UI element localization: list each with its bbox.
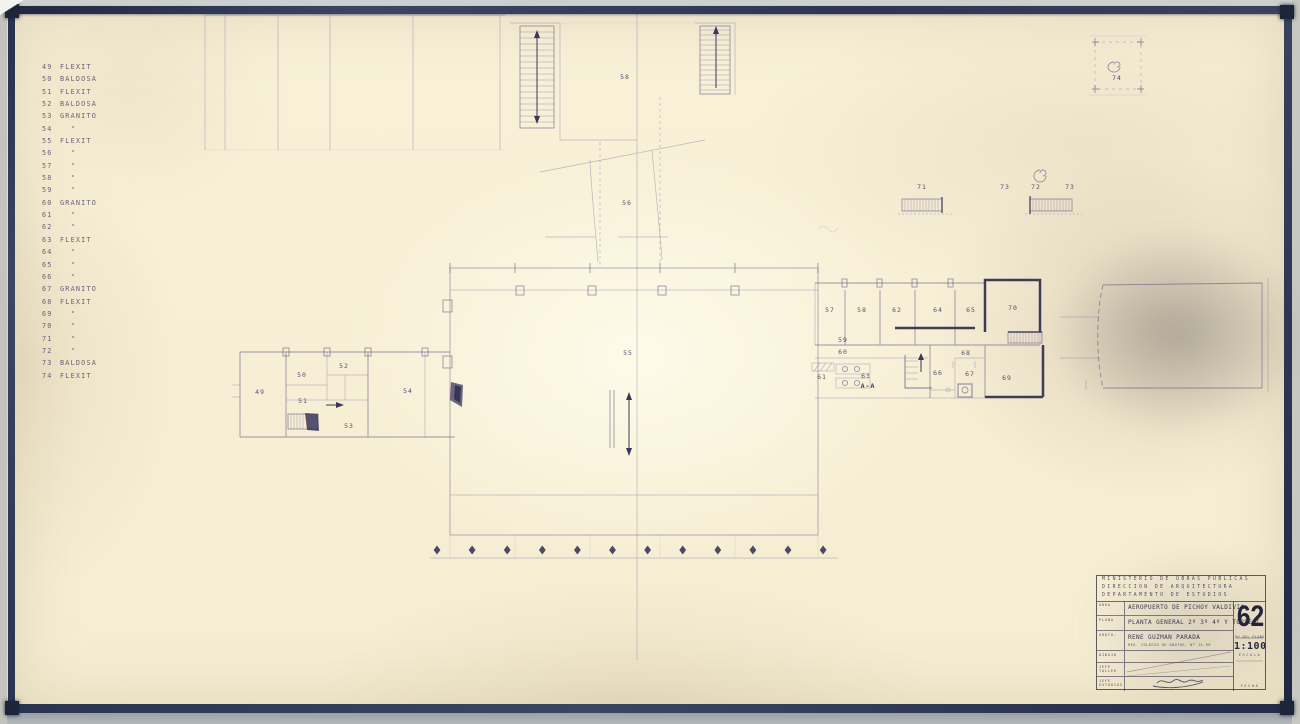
title-block-row-value: RENE GUZMAN PARADAREG. COLEGIO DE ARQTOS… — [1128, 631, 1233, 647]
title-block-row-label: JEFE TALLER — [1097, 663, 1125, 676]
sheet-border-frame-top — [6, 6, 1290, 14]
title-block-row: PLANOPLANTA GENERAL 2º 3º 4º Y TORRE C. — [1097, 616, 1233, 631]
legend-item: 61" — [42, 211, 97, 223]
agency-line: DEPARTAMENTO DE ESTUDIOS — [1097, 592, 1265, 600]
legend-item-number: 68 — [42, 298, 60, 306]
legend-item-material: " — [60, 211, 76, 219]
column-marker — [539, 546, 546, 555]
column-marker — [714, 546, 721, 555]
legend-item-material: " — [60, 261, 76, 269]
sheet-border-frame-left — [8, 7, 15, 711]
stair-top-left — [520, 26, 554, 128]
upper-floor-outline — [510, 23, 838, 265]
legend-item: 50BALDOSA — [42, 75, 97, 87]
column-marker — [469, 546, 476, 555]
legend-item: 69" — [42, 310, 97, 322]
legend-item-number: 52 — [42, 100, 60, 108]
plan-number-caption: Nº DEL PLANO — [1234, 635, 1266, 639]
column-marker — [644, 546, 651, 555]
legend-item: 54" — [42, 125, 97, 137]
legend-item: 59" — [42, 186, 97, 198]
title-block-row-value — [1128, 651, 1233, 654]
legend-item: 56" — [42, 149, 97, 161]
title-block-row-value: PLANTA GENERAL 2º 3º 4º Y TORRE C. — [1128, 616, 1233, 626]
legend-item: 72" — [42, 347, 97, 359]
title-block-row-label: ARQTO. — [1097, 631, 1125, 650]
legend-item-number: 56 — [42, 149, 60, 157]
legend-item-number: 58 — [42, 174, 60, 182]
legend-item-material: FLEXIT — [60, 298, 92, 306]
column-marker — [820, 546, 827, 555]
legend-item-number: 53 — [42, 112, 60, 120]
legend-item-number: 51 — [42, 88, 60, 96]
scale-caption: ESCALA — [1234, 653, 1266, 657]
legend-item-number: 73 — [42, 359, 60, 367]
title-block-row-subvalue: REG. COLEGIO DE ARQTOS. Nº 14-99 — [1128, 642, 1233, 647]
legend-item: 74FLEXIT — [42, 372, 97, 384]
title-block-row-value: AEROPUERTO DE PICHOY VALDIVIA — [1128, 601, 1233, 611]
legend-item-number: 63 — [42, 236, 60, 244]
left-wing — [232, 348, 455, 437]
legend-item-number: 50 — [42, 75, 60, 83]
date-caption: FECHA — [1234, 684, 1266, 688]
column-marker — [434, 546, 441, 555]
legend-item-number: 72 — [42, 347, 60, 355]
legend-item-number: 60 — [42, 199, 60, 207]
stair-detail-71 — [898, 197, 952, 214]
stair-top-right — [700, 26, 730, 94]
title-block-row: DIBUJO — [1097, 651, 1233, 663]
legend-item: 65" — [42, 261, 97, 273]
legend-item-material: GRANITO — [60, 199, 97, 207]
legend-item-number: 67 — [42, 285, 60, 293]
legend-item-number: 54 — [42, 125, 60, 133]
legend-item-material: FLEXIT — [60, 372, 92, 380]
title-block-row-label: PLANO — [1097, 616, 1125, 630]
legend-item-material: " — [60, 248, 76, 256]
legend-item-material: " — [60, 335, 76, 343]
legend-item-material: " — [60, 174, 76, 182]
legend-item: 64" — [42, 248, 97, 260]
legend-item-material: " — [60, 223, 76, 231]
plan-number: 62 — [1237, 601, 1263, 633]
legend-item: 60GRANITO — [42, 199, 97, 211]
tower-detail — [1090, 36, 1146, 95]
title-block-row: OBRAAEROPUERTO DE PICHOY VALDIVIA — [1097, 601, 1233, 616]
blueprint-sheet: 58565549505152535457586264657059606163A-… — [0, 0, 1300, 724]
column-marker — [785, 546, 792, 555]
legend-item: 57" — [42, 162, 97, 174]
legend-item-material: FLEXIT — [60, 88, 92, 96]
legend-item-number: 55 — [42, 137, 60, 145]
legend-item-number: 71 — [42, 335, 60, 343]
legend-item: 53GRANITO — [42, 112, 97, 124]
legend-item-material: FLEXIT — [60, 236, 92, 244]
legend-item-material: " — [60, 347, 76, 355]
legend-item-material: BALDOSA — [60, 100, 97, 108]
title-block: MINISTERIO DE OBRAS PUBLICASDIRECCION DE… — [1096, 575, 1266, 690]
title-block-row: ARQTO.RENE GUZMAN PARADAREG. COLEGIO DE … — [1097, 631, 1233, 651]
title-block-row-label: OBRA — [1097, 601, 1125, 615]
frame-corner — [1280, 701, 1294, 715]
legend-item-material: FLEXIT — [60, 63, 92, 71]
materials-legend: 49FLEXIT50BALDOSA51FLEXIT52BALDOSA53GRAN… — [42, 63, 97, 384]
legend-item-number: 65 — [42, 261, 60, 269]
legend-item: 62" — [42, 223, 97, 235]
title-block-row: JEFE TALLER — [1097, 663, 1233, 677]
legend-item-material: " — [60, 186, 76, 194]
stair-detail-72 — [1025, 170, 1082, 214]
legend-item-number: 70 — [42, 322, 60, 330]
legend-item-number: 59 — [42, 186, 60, 194]
title-block-rows: OBRAAEROPUERTO DE PICHOY VALDIVIAPLANOPL… — [1097, 601, 1233, 691]
column-marker — [679, 546, 686, 555]
legend-item-number: 49 — [42, 63, 60, 71]
title-block-row-label: DIBUJO — [1097, 651, 1125, 662]
frame-corner — [1280, 5, 1294, 19]
legend-item-number: 74 — [42, 372, 60, 380]
title-block-right-column: 62 Nº DEL PLANO 1:100 ESCALA FECHA — [1233, 601, 1266, 691]
legend-item: 51FLEXIT — [42, 88, 97, 100]
legend-item-material: " — [60, 162, 76, 170]
sheet-border-frame-right — [1284, 8, 1292, 714]
agency-line: MINISTERIO DE OBRAS PUBLICAS — [1097, 576, 1265, 584]
legend-item-material: GRANITO — [60, 112, 97, 120]
legend-item: 55FLEXIT — [42, 137, 97, 149]
legend-item: 66" — [42, 273, 97, 285]
title-block-row: JEFE ESTUDIOS — [1097, 677, 1233, 691]
legend-item-number: 62 — [42, 223, 60, 231]
right-hall — [1060, 278, 1268, 392]
legend-item: 52BALDOSA — [42, 100, 97, 112]
roof-grid — [205, 15, 695, 150]
sheet-border-frame-bottom — [7, 704, 1291, 713]
legend-item: 70" — [42, 322, 97, 334]
legend-item-material: GRANITO — [60, 285, 97, 293]
column-marker — [750, 546, 757, 555]
legend-item-number: 57 — [42, 162, 60, 170]
title-block-row-value — [1128, 663, 1233, 666]
frame-corner — [5, 701, 19, 715]
legend-item-material: BALDOSA — [60, 75, 97, 83]
right-wing — [812, 279, 1043, 398]
legend-item-material: " — [60, 125, 76, 133]
column-marker — [574, 546, 581, 555]
legend-item-number: 66 — [42, 273, 60, 281]
column-marker — [504, 546, 511, 555]
legend-item-number: 61 — [42, 211, 60, 219]
legend-item: 63FLEXIT — [42, 236, 97, 248]
legend-item: 67GRANITO — [42, 285, 97, 297]
legend-item-material: " — [60, 310, 76, 318]
column-marker — [609, 546, 616, 555]
legend-item-number: 64 — [42, 248, 60, 256]
legend-item-material: BALDOSA — [60, 359, 97, 367]
central-hall — [430, 263, 838, 558]
title-block-row-label: JEFE ESTUDIOS — [1097, 677, 1125, 691]
legend-item-number: 69 — [42, 310, 60, 318]
title-block-row-value — [1128, 677, 1233, 680]
legend-item-material: " — [60, 322, 76, 330]
legend-item: 49FLEXIT — [42, 63, 97, 75]
legend-item: 71" — [42, 335, 97, 347]
legend-item: 58" — [42, 174, 97, 186]
legend-item-material: FLEXIT — [60, 137, 92, 145]
agency-header: MINISTERIO DE OBRAS PUBLICASDIRECCION DE… — [1097, 576, 1265, 602]
scale-value: 1:100 — [1234, 641, 1266, 652]
legend-item: 68FLEXIT — [42, 298, 97, 310]
legend-item-material: " — [60, 273, 76, 281]
legend-item-material: " — [60, 149, 76, 157]
legend-item: 73BALDOSA — [42, 359, 97, 371]
agency-line: DIRECCION DE ARQUITECTURA — [1097, 584, 1265, 592]
column-markers — [434, 546, 827, 555]
